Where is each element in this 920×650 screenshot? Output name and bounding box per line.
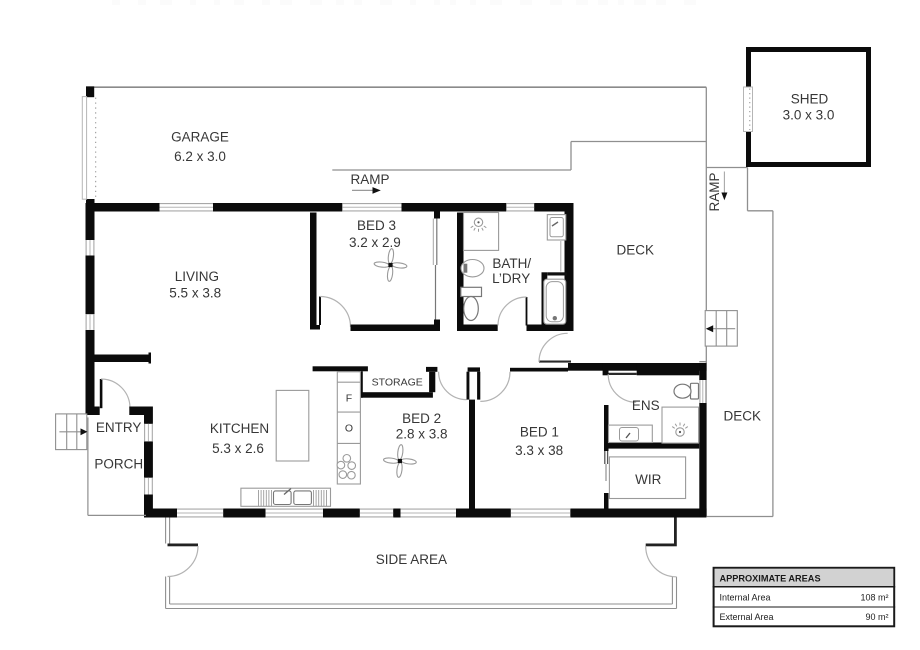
svg-text:ENTRY: ENTRY xyxy=(96,420,142,435)
svg-text:6.2 x 3.0: 6.2 x 3.0 xyxy=(174,149,226,164)
svg-text:RAMP: RAMP xyxy=(350,172,389,187)
svg-text:3.3 x 38: 3.3 x 38 xyxy=(515,443,563,458)
svg-text:BED 2: BED 2 xyxy=(402,411,441,426)
svg-text:90 m²: 90 m² xyxy=(865,612,888,622)
svg-text:PORCH: PORCH xyxy=(94,457,143,472)
svg-text:SHED: SHED xyxy=(791,91,829,106)
svg-text:Internal Area: Internal Area xyxy=(720,592,771,602)
svg-text:5.5 x 3.8: 5.5 x 3.8 xyxy=(169,286,221,301)
svg-text:3.2 x 2.9: 3.2 x 2.9 xyxy=(349,235,401,250)
svg-text:WIR: WIR xyxy=(635,472,661,487)
svg-text:5.3 x 2.6: 5.3 x 2.6 xyxy=(212,441,264,456)
svg-text:KITCHEN: KITCHEN xyxy=(210,421,269,436)
svg-text:F: F xyxy=(346,393,352,405)
svg-text:LIVING: LIVING xyxy=(175,269,219,284)
svg-text:DECK: DECK xyxy=(724,408,762,423)
svg-text:External Area: External Area xyxy=(720,612,774,622)
svg-text:GARAGE: GARAGE xyxy=(171,129,229,144)
svg-text:O: O xyxy=(345,422,353,434)
svg-text:108 m²: 108 m² xyxy=(860,592,888,602)
svg-text:DECK: DECK xyxy=(617,243,655,258)
svg-text:BATH/: BATH/ xyxy=(492,256,531,271)
svg-text:APPROXIMATE AREAS: APPROXIMATE AREAS xyxy=(720,573,821,583)
svg-text:BED 3: BED 3 xyxy=(357,218,396,233)
svg-text:L’DRY: L’DRY xyxy=(492,271,530,286)
svg-text:BED 1: BED 1 xyxy=(520,424,559,439)
svg-text:SIDE AREA: SIDE AREA xyxy=(376,552,447,567)
svg-text:STORAGE: STORAGE xyxy=(372,377,423,389)
svg-text:3.0 x 3.0: 3.0 x 3.0 xyxy=(783,107,835,122)
svg-text:ENS: ENS xyxy=(632,398,660,413)
svg-text:2.8 x 3.8: 2.8 x 3.8 xyxy=(396,427,448,442)
svg-text:RAMP: RAMP xyxy=(707,172,722,211)
